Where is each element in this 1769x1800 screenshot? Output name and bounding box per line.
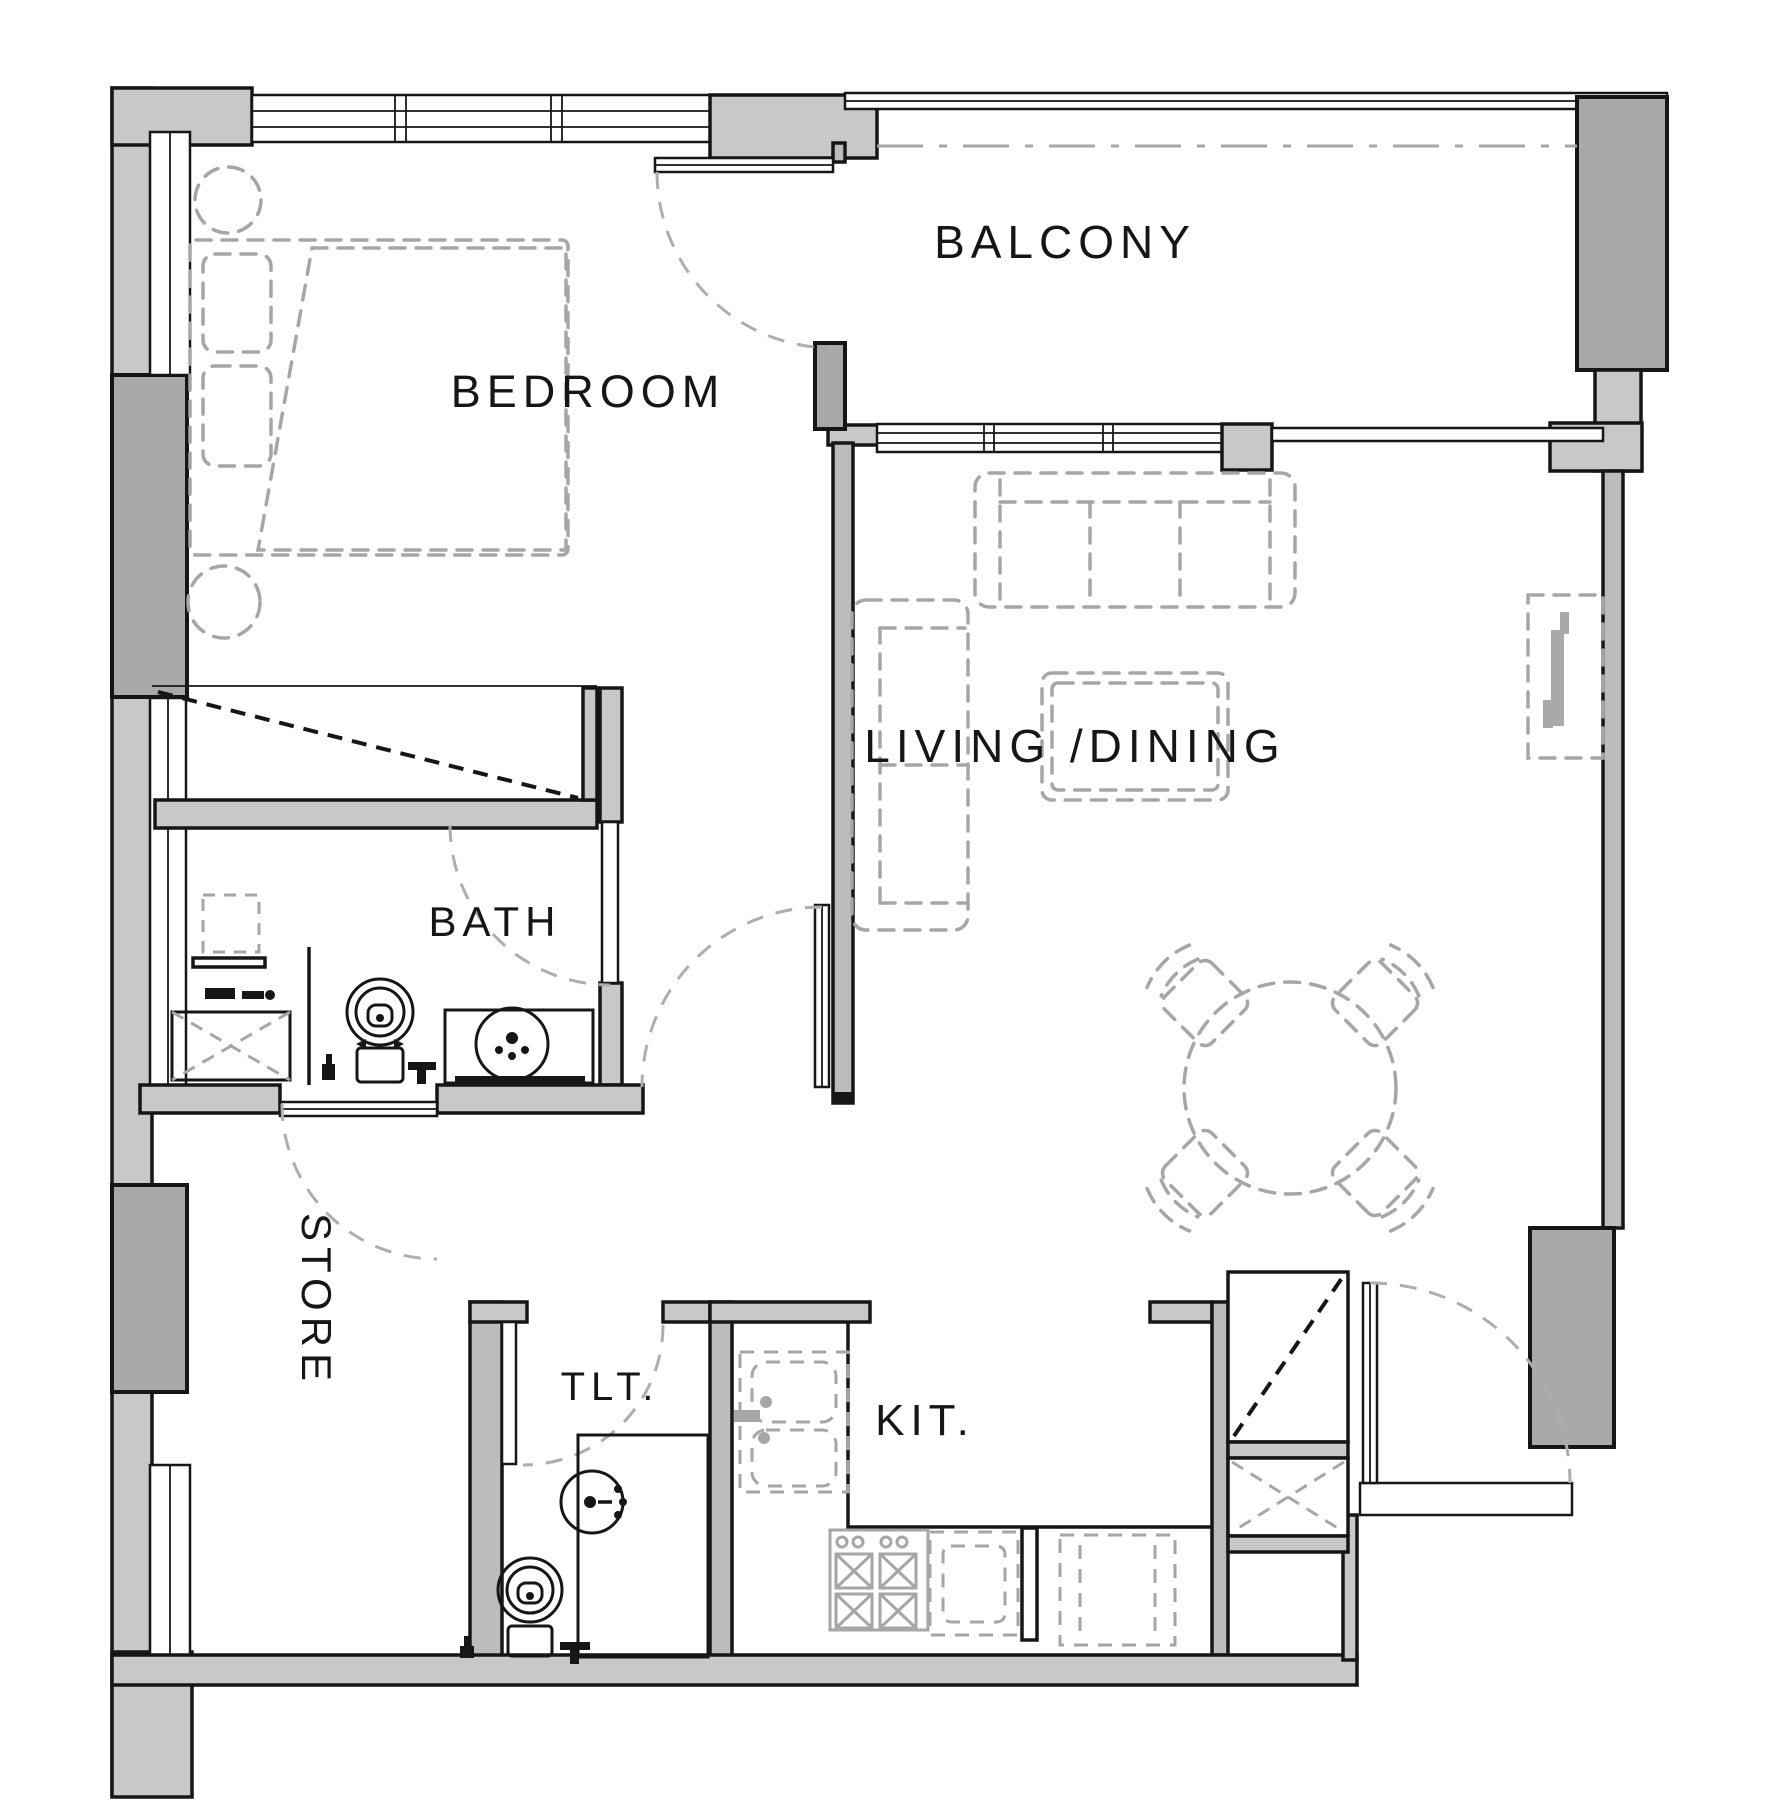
window-bedroom-top-icon [252,95,710,142]
burner-icon [880,1594,916,1628]
window-bath-left-icon [150,698,186,1088]
bath-sink-icon [445,1008,593,1084]
window-store-left-icon [150,1465,190,1657]
wall-store-top-right [437,1085,643,1113]
appliance-icon [1060,1535,1175,1645]
balcony-floor-edge [1272,428,1603,441]
nightstand-icon [195,167,261,233]
wall-kitchen-top-stub [1150,1302,1212,1322]
wall-window-step [1222,424,1272,470]
store-label: STORE [293,1213,340,1387]
kitchen-label: KIT. [875,1396,975,1445]
balcony-glazing [877,146,1603,470]
dining-set-icon [1141,939,1440,1238]
stove-icon [830,1530,928,1630]
bath-label: BATH [429,898,562,945]
wall-tlt-top-left [470,1302,527,1322]
tlt-sink-icon [561,1471,627,1533]
tv-unit-icon [1528,595,1603,758]
wall-kitchen-right [1212,1302,1228,1655]
dining-chair-icon [1328,1126,1439,1237]
shower-tray-icon [172,1012,290,1080]
wall-bottom [112,1655,1357,1685]
window-balcony-living-icon [877,424,1222,452]
wall-living-left [833,443,853,1103]
window-bedroom-left-icon [150,132,190,375]
nightstand-icon [188,566,260,638]
wall-tlt-right [710,1302,732,1662]
door-swing-arc [657,172,833,348]
wall-balcony-right-pier [1577,97,1667,370]
toilet-icon [347,979,413,1082]
wall-bath-right-lower [600,983,622,1085]
wall-tlt-left [470,1302,502,1662]
door-hallway [642,905,829,1087]
toilet-icon [498,1558,562,1656]
tlt-counter [578,1435,708,1657]
dining-chair-icon [1141,1126,1252,1237]
wall-bath-top [155,800,597,828]
wall-closet-right [583,688,597,800]
wall-entry-pier [1530,1228,1614,1447]
burner-icon [880,1554,916,1588]
dining-table-icon [1184,982,1396,1194]
burner-icon [836,1594,872,1628]
wall-store-top-left [140,1085,280,1113]
bath-niche-icon [203,895,259,952]
wall-balcony-left-pier [815,343,845,429]
closet-rod-icon [158,692,578,798]
balcony-parapet [845,93,1667,109]
living-dining-label: LIVING /DINING [864,720,1285,772]
room-labels: BALCONY BEDROOM LIVING /DINING BATH STOR… [293,216,1286,1445]
toilet-label: TLT. [561,1365,660,1409]
wall-kitchen-top [710,1302,870,1322]
sofa-3seat-icon [975,473,1295,607]
bath-mixer-icon [205,988,275,1000]
wall-living-left-cap [833,1092,853,1104]
bedroom-label: BEDROOM [451,366,726,417]
dining-chair-icon [1141,939,1252,1050]
counter-divider [1022,1528,1037,1640]
floor-drain-icon [322,1054,335,1080]
wall-tlt-top-right [663,1302,710,1322]
wall-left-pier-2 [112,1185,187,1392]
service-shaft [1228,1272,1348,1552]
dining-chair-icon [1328,939,1439,1050]
wall-left-outer [112,88,152,1795]
kitchen-sink-icon [734,1352,848,1492]
wall-living-right [1603,471,1623,1228]
kitchen-fixtures [734,1322,1212,1645]
burner-icon [836,1554,872,1588]
wall-left-pier-1 [112,375,187,697]
living-furniture [852,473,1603,1237]
door-swing-arc [642,907,822,1087]
entry-threshold [1360,1483,1572,1515]
balcony-label: BALCONY [934,216,1196,268]
floor-plan-page: BALCONY BEDROOM LIVING /DINING BATH STOR… [0,0,1769,1800]
wall-balcony-left-stub [833,143,845,162]
door-bedroom-balcony [655,158,833,348]
fridge-icon [930,1532,1018,1635]
floor-plan-drawing: BALCONY BEDROOM LIVING /DINING BATH STOR… [0,0,1769,1800]
wall-bath-right-upper [600,688,622,822]
bath-tap-icon [408,1062,436,1084]
bedroom-furniture [158,167,578,798]
bath-shelf-icon [193,958,265,967]
